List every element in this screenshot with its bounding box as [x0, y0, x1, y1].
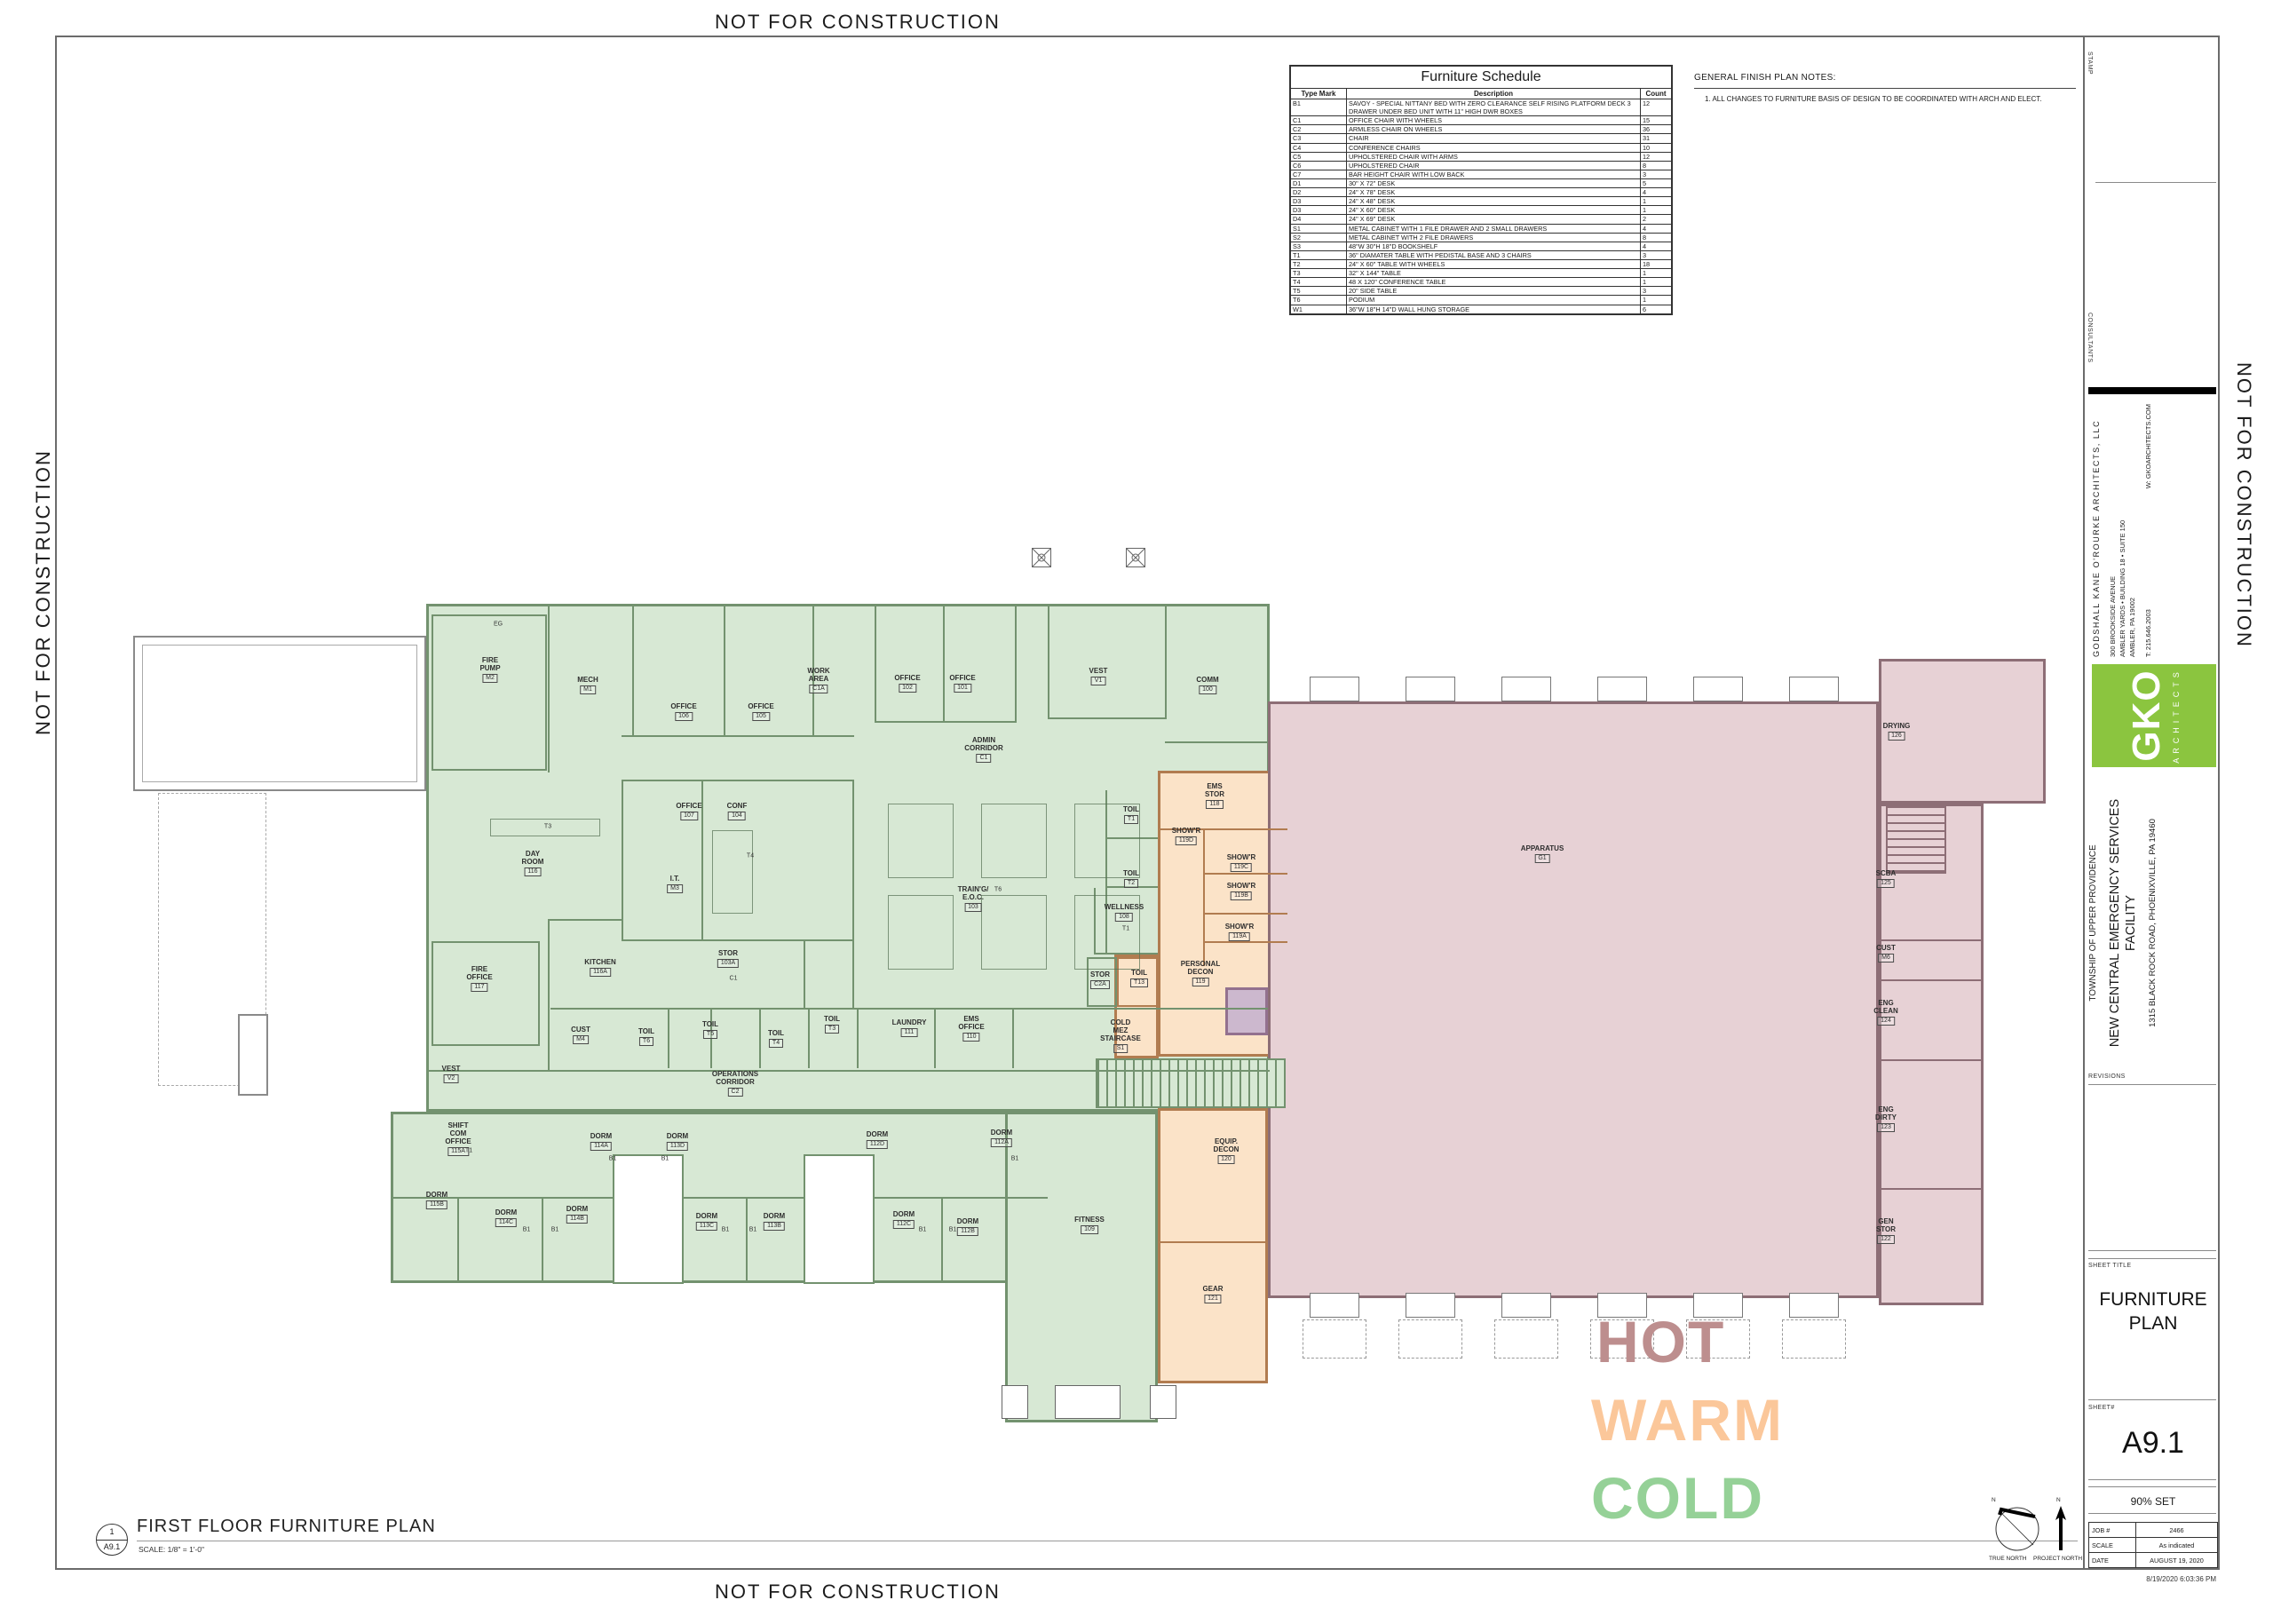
dorm-courtyard-gap — [613, 1154, 684, 1284]
room-tag: 101 — [954, 684, 971, 693]
room-tag: C2A — [1090, 980, 1110, 989]
legend-cold: COLD — [1591, 1469, 1764, 1527]
viewport-scale: SCALE: 1/8" = 1'-0" — [139, 1545, 204, 1554]
type-mark-cell: C1 — [1290, 116, 1347, 125]
room-tag: V1 — [1091, 677, 1106, 685]
watermark-bottom: NOT FOR CONSTRUCTION — [715, 1580, 1001, 1604]
room-name: TOIL — [638, 1028, 654, 1036]
room-name: I.T. — [667, 875, 683, 883]
description-cell: SAVOY - SPECIAL NITTANY BED WITH ZERO CL… — [1347, 99, 1641, 116]
wall-segment — [875, 721, 1017, 723]
wall-segment — [391, 1197, 613, 1199]
room-label: TRAIN'G/E.O.C.103 — [958, 886, 989, 912]
furniture-outline — [981, 895, 1047, 970]
job-info-value: As indicated — [2136, 1538, 2218, 1553]
room-name: STOR — [717, 950, 739, 958]
general-notes: GENERAL FINISH PLAN NOTES: 1. ALL CHANGE… — [1694, 73, 2076, 103]
revisions-label: REVISIONS — [2088, 1073, 2126, 1080]
room-label: DORM113C — [696, 1213, 717, 1231]
schedule-row: C1OFFICE CHAIR WITH WHEELS15 — [1290, 116, 1672, 125]
wall-segment — [1879, 979, 1984, 981]
set-rule-1 — [2088, 1479, 2216, 1480]
type-mark-cell: D4 — [1290, 215, 1347, 224]
description-cell: ARMLESS CHAIR ON WHEELS — [1347, 125, 1641, 134]
room-name: SCBA — [1876, 870, 1897, 878]
sheet-title-label: SHEET TITLE — [2088, 1263, 2132, 1269]
type-mark-cell: C7 — [1290, 170, 1347, 178]
note-item: 1. ALL CHANGES TO FURNITURE BASIS OF DES… — [1694, 95, 2076, 103]
room-name: OFFICE — [748, 703, 773, 711]
room-name: DORM — [696, 1213, 717, 1221]
count-cell: 15 — [1641, 116, 1673, 125]
room-tag: 102 — [899, 684, 916, 693]
wall-segment — [1165, 606, 1167, 719]
viewport-bubble: 1 A9.1 — [96, 1524, 128, 1556]
room-label: MECHM1 — [577, 677, 598, 694]
room-name: FITNESS — [1074, 1216, 1105, 1224]
room-tag: 114B — [566, 1215, 588, 1224]
description-cell: UPHOLSTERED CHAIR — [1347, 161, 1641, 170]
sheet-title-rule-1 — [2088, 1250, 2216, 1251]
count-cell: 12 — [1641, 152, 1673, 161]
project-client: TOWNSHIP OF UPPER PROVIDENCE — [2088, 774, 2098, 1072]
wall-segment — [941, 1199, 943, 1283]
wall-segment — [1203, 913, 1287, 915]
schedule-column-header: Description — [1347, 89, 1641, 99]
project-info: TOWNSHIP OF UPPER PROVIDENCE NEW CENTRAL… — [2088, 774, 2218, 1072]
type-mark-cell: T6 — [1290, 296, 1347, 305]
count-cell: 3 — [1641, 170, 1673, 178]
viewport-title: FIRST FLOOR FURNITURE PLAN — [137, 1517, 436, 1537]
description-cell: BAR HEIGHT CHAIR WITH LOW BACK — [1347, 170, 1641, 178]
type-mark-cell: S1 — [1290, 224, 1347, 233]
project-north-n: N — [2056, 1497, 2061, 1503]
entry-stoop — [1150, 1385, 1176, 1419]
room-label: GEAR121 — [1202, 1286, 1223, 1303]
room-label: EMSOFFICE110 — [958, 1016, 984, 1042]
count-cell: 1 — [1641, 278, 1673, 287]
wall-segment — [1879, 1059, 1984, 1061]
wall-segment — [622, 939, 852, 941]
description-cell: 48 X 120" CONFERENCE TABLE — [1347, 278, 1641, 287]
watermark-top: NOT FOR CONSTRUCTION — [715, 11, 1001, 34]
type-mark-cell: B1 — [1290, 99, 1347, 116]
count-cell: 1 — [1641, 197, 1673, 206]
sheet-title-rule-2 — [2088, 1258, 2216, 1259]
project-name-line1: NEW CENTRAL EMERGENCY SERVICES — [2107, 774, 2123, 1072]
room-label: ENGDIRTY123 — [1875, 1106, 1897, 1132]
furniture-mark: B1 — [919, 1227, 927, 1233]
description-cell: 24" X 48" DESK — [1347, 197, 1641, 206]
room-tag: 122 — [1877, 1235, 1895, 1244]
job-info-row: SCALEAs indicated — [2089, 1538, 2218, 1553]
wall-segment — [1879, 1188, 1984, 1190]
count-cell: 36 — [1641, 125, 1673, 134]
furniture-outline — [981, 804, 1047, 878]
furniture-mark: B1 — [1011, 1156, 1019, 1162]
bay-door — [1310, 677, 1359, 701]
room-name: TOIL — [1123, 870, 1139, 878]
room-label: CUSTM6 — [1876, 945, 1896, 963]
room-label: LAUNDRY111 — [892, 1019, 927, 1037]
schedule-row: C5UPHOLSTERED CHAIR WITH ARMS12 — [1290, 152, 1672, 161]
count-cell: 6 — [1641, 305, 1673, 314]
firm-website: W: GKOARCHITECTS.COM — [2144, 404, 2152, 488]
room-label: WELLNESS108 — [1105, 904, 1144, 922]
set-rule-2 — [2088, 1486, 2216, 1487]
firm-phone: T: 215.646.2003 — [2144, 609, 2152, 657]
description-cell: CONFERENCE CHAIRS — [1347, 143, 1641, 152]
sheet-number-rule — [2088, 1399, 2216, 1400]
room-name: DECON — [1181, 969, 1220, 977]
room-label: GENSTOR122 — [1876, 1218, 1896, 1244]
type-mark-cell: W1 — [1290, 305, 1347, 314]
room-tag: 113D — [667, 1142, 688, 1151]
firm-address-3: AMBLER, PA 19002 — [2128, 404, 2138, 657]
wall-segment — [548, 919, 623, 921]
room-name: DIRTY — [1875, 1114, 1897, 1122]
room-name: TOIL — [702, 1021, 718, 1029]
furniture-mark: EG — [494, 622, 503, 628]
sheet-number: A9.1 — [2088, 1426, 2218, 1461]
schedule-column-header: Type Mark — [1290, 89, 1347, 99]
room-label: DORM113B — [764, 1213, 785, 1231]
furniture-mark: B1 — [722, 1227, 730, 1233]
bay-door — [1406, 1293, 1455, 1318]
room-name: CORRIDOR — [964, 745, 1003, 753]
room-label: COMM100 — [1196, 677, 1218, 694]
room-name: STAIRCASE — [1100, 1035, 1141, 1043]
wall-segment — [852, 1008, 1268, 1010]
viewport-title-rule — [137, 1541, 2078, 1541]
room-name: DRYING — [1883, 723, 1911, 731]
wall-segment — [426, 1070, 1270, 1072]
gko-logo: GKO ARCHITECTS — [2092, 664, 2216, 767]
room-label: SHOW'R119B — [1227, 883, 1256, 900]
bay-door-apron — [1303, 1319, 1366, 1359]
schedule-row: C3CHAIR31 — [1290, 134, 1672, 143]
gko-logo-subtext: ARCHITECTS — [2172, 668, 2181, 764]
notes-title: GENERAL FINISH PLAN NOTES: — [1694, 73, 2076, 83]
type-mark-cell: T2 — [1290, 259, 1347, 268]
true-north-icon — [1989, 1502, 2044, 1558]
schedule-row: T224" X 60" TABLE WITH WHEELS18 — [1290, 259, 1672, 268]
room-name: OFFICE — [949, 675, 975, 683]
furniture-mark: T1 — [465, 1148, 472, 1154]
room-label: VESTV1 — [1089, 668, 1108, 685]
schedule-row: D424" X 69" DESK2 — [1290, 215, 1672, 224]
room-label: SHOW'R119C — [1227, 854, 1256, 872]
room-name: STOR — [1090, 971, 1110, 979]
room-label: EQUIP.DECON120 — [1214, 1138, 1239, 1164]
room-tag: 100 — [1199, 685, 1216, 694]
room-name: DORM — [590, 1133, 612, 1141]
type-mark-cell: D1 — [1290, 178, 1347, 187]
room-name: SHOW'R — [1172, 828, 1201, 836]
room-tag: C1 — [977, 754, 992, 763]
room-tag: C1A — [809, 685, 828, 693]
room-label: CUSTM4 — [571, 1026, 590, 1044]
cold-mez-stair — [1096, 1058, 1286, 1108]
room-tag: 119B — [1231, 891, 1252, 900]
room-name: OFFICE — [676, 803, 701, 811]
bay-door — [1597, 677, 1647, 701]
bay-door — [1693, 677, 1743, 701]
stamp-underline — [2095, 182, 2216, 183]
revisions-underline — [2088, 1084, 2216, 1085]
canopy-inner-line — [142, 645, 417, 782]
wall-segment — [746, 1199, 748, 1283]
room-name: CUST — [571, 1026, 590, 1034]
room-label: APPARATUSG1 — [1521, 845, 1564, 863]
viewport-sheet-ref: A9.1 — [97, 1541, 127, 1553]
room-tag: 119 — [1192, 978, 1208, 986]
column-symbol — [1126, 548, 1145, 567]
room-label: SHOW'R119D — [1172, 828, 1201, 845]
wall-segment — [684, 1197, 804, 1199]
room-label: OFFICE102 — [894, 675, 920, 693]
set-rule-3 — [2088, 1513, 2216, 1514]
room-tag: 112C — [893, 1220, 915, 1229]
room-label: DAYROOM116 — [522, 851, 544, 876]
room-label: SCBA125 — [1876, 870, 1897, 888]
count-cell: 1 — [1641, 206, 1673, 215]
furniture-outline — [888, 895, 954, 970]
count-cell: 1 — [1641, 269, 1673, 278]
room-tag: 103A — [717, 959, 739, 968]
count-cell: 10 — [1641, 143, 1673, 152]
sheet-title: FURNITURE PLAN — [2088, 1287, 2218, 1336]
room-tag: 103 — [964, 903, 982, 912]
wall-segment — [1203, 873, 1287, 875]
room-tag: 116A — [590, 968, 611, 977]
bay-door — [1406, 677, 1455, 701]
wall-segment — [808, 1010, 810, 1068]
wall-segment — [1048, 717, 1167, 719]
room-tag: 105 — [752, 712, 770, 721]
room-tag: T4 — [769, 1039, 783, 1048]
job-info-row: JOB #2466 — [2089, 1523, 2218, 1538]
room-tag: T13 — [1130, 978, 1148, 987]
furniture-mark: T1 — [1122, 926, 1129, 932]
room-tag: 123 — [1877, 1123, 1895, 1132]
entry-stoop — [1002, 1385, 1028, 1419]
room-tag: 126 — [1888, 732, 1905, 741]
furniture-mark: T3 — [544, 824, 551, 830]
room-tag: 119C — [1231, 863, 1252, 872]
room-label: DORM112C — [893, 1211, 915, 1229]
description-cell: METAL CABINET WITH 2 FILE DRAWERS — [1347, 233, 1641, 242]
room-tag: M6 — [1878, 954, 1894, 963]
room-label: ADMINCORRIDORC1 — [964, 737, 1003, 763]
wall-segment — [632, 606, 634, 735]
count-cell: 18 — [1641, 259, 1673, 268]
project-north-label: PROJECT NORTH — [2033, 1556, 2082, 1562]
room-name: AREA — [807, 676, 829, 684]
description-cell: 32" X 144" TABLE — [1347, 269, 1641, 278]
room-name: OFFICE — [670, 703, 696, 711]
room-tag: C2 — [728, 1088, 743, 1097]
zone-decon-toilet — [1225, 987, 1268, 1035]
project-address: 1315 BLACK ROCK ROAD, PHOENIXVILLE, PA 1… — [2148, 774, 2158, 1072]
room-tag: 111 — [901, 1028, 918, 1037]
room-name: PUMP — [479, 665, 500, 673]
room-tag: G1 — [1534, 854, 1549, 863]
description-cell: 36" DIAMATER TABLE WITH PEDISTAL BASE AN… — [1347, 250, 1641, 259]
column-x-icon — [1033, 549, 1050, 566]
legend-hot: HOT — [1596, 1312, 1725, 1371]
room-tag: 107 — [680, 812, 698, 820]
wall-segment — [457, 1199, 459, 1283]
job-info-value: 2466 — [2136, 1523, 2218, 1538]
room-name: DORM — [667, 1133, 688, 1141]
wall-segment — [1203, 830, 1205, 966]
room-name: TOIL — [1123, 806, 1139, 814]
room-label: DORM114C — [495, 1209, 517, 1227]
room-name: ROOM — [522, 859, 544, 867]
room-label: OFFICE105 — [748, 703, 773, 721]
count-cell: 1 — [1641, 296, 1673, 305]
schedule-row: T6PODIUM1 — [1290, 296, 1672, 305]
bay-door — [1501, 677, 1551, 701]
schedule-row: D130" X 72" DESK5 — [1290, 178, 1672, 187]
room-label: KITCHEN116A — [584, 959, 616, 977]
room-name: CONF — [727, 803, 748, 811]
schedule-row: C7BAR HEIGHT CHAIR WITH LOW BACK3 — [1290, 170, 1672, 178]
schedule-row: D324" X 60" DESK1 — [1290, 206, 1672, 215]
room-label: SHOW'R119A — [1225, 923, 1255, 941]
room-name: SHOW'R — [1225, 923, 1255, 931]
furniture-mark: B1 — [551, 1227, 559, 1233]
consultants-label: CONSULTANTS — [2087, 313, 2093, 363]
firm-name: GODSHALL KANE O'ROURKE ARCHITECTS, LLC — [2092, 404, 2101, 657]
room-label: TOILT6 — [638, 1028, 654, 1046]
room-tag: 120 — [1217, 1155, 1235, 1164]
sheet-number-label: SHEET# — [2088, 1405, 2115, 1411]
project-name-line2: FACILITY — [2123, 774, 2139, 1072]
wall-segment — [724, 606, 725, 735]
room-tag: 112B — [957, 1227, 978, 1236]
room-name: WELLNESS — [1105, 904, 1144, 912]
furniture-mark: C1 — [730, 976, 738, 982]
wall-segment — [548, 919, 550, 1070]
wall-segment — [1158, 1241, 1268, 1243]
description-cell: METAL CABINET WITH 1 FILE DRAWER AND 2 S… — [1347, 224, 1641, 233]
room-name: OFFICE — [894, 675, 920, 683]
room-name: CUST — [1876, 945, 1896, 953]
room-label: TOILT3 — [824, 1016, 840, 1034]
type-mark-cell: S2 — [1290, 233, 1347, 242]
wall-segment — [1048, 606, 1049, 719]
job-info-table: JOB #2466SCALEAs indicatedDATEAUGUST 19,… — [2088, 1522, 2218, 1568]
wall-segment — [804, 939, 805, 1010]
description-cell: OFFICE CHAIR WITH WHEELS — [1347, 116, 1641, 125]
room-name: VEST — [1089, 668, 1108, 676]
wall-segment — [710, 1010, 712, 1068]
firm-address-2: AMBLER YARDS • BUILDING 18 • SUITE 150 — [2119, 404, 2128, 657]
legend-warm: WARM — [1591, 1390, 1784, 1449]
wall-segment — [1015, 606, 1017, 721]
schedule-row: C4CONFERENCE CHAIRS10 — [1290, 143, 1672, 152]
count-cell: 4 — [1641, 242, 1673, 250]
bay-door-apron — [1398, 1319, 1462, 1359]
wall-segment — [875, 606, 876, 721]
schedule-column-header: Count — [1641, 89, 1673, 99]
type-mark-cell: S3 — [1290, 242, 1347, 250]
schedule-row: D324" X 48" DESK1 — [1290, 197, 1672, 206]
job-info-label: JOB # — [2089, 1523, 2136, 1538]
furniture-mark: T6 — [994, 887, 1002, 893]
room-name: CLEAN — [1873, 1008, 1898, 1016]
wall-segment — [1165, 741, 1268, 743]
room-name: DORM — [426, 1192, 447, 1200]
job-info-row: DATEAUGUST 19, 2020 — [2089, 1553, 2218, 1568]
dorm-courtyard-gap — [804, 1154, 875, 1284]
bay-door-apron — [1494, 1319, 1558, 1359]
wall-segment — [1879, 939, 1984, 941]
room-label: TOILT1 — [1123, 806, 1139, 824]
zone-cold-fitness — [1005, 1112, 1158, 1422]
wall-segment — [668, 1010, 669, 1068]
room-name: APPARATUS — [1521, 845, 1564, 853]
room-label: OFFICE101 — [949, 675, 975, 693]
room-label: COLDMEZSTAIRCASES1 — [1100, 1019, 1141, 1053]
stamp-label: STAMP — [2087, 51, 2093, 75]
furniture-mark: B1 — [523, 1227, 531, 1233]
room-name: VEST — [442, 1066, 461, 1073]
wall-segment — [875, 1197, 1048, 1199]
room-tag: 110 — [962, 1033, 979, 1042]
room-label: TOILT4 — [768, 1030, 784, 1048]
furniture-outline — [712, 830, 753, 914]
count-cell: 3 — [1641, 250, 1673, 259]
schedule-row: B1SAVOY - SPECIAL NITTANY BED WITH ZERO … — [1290, 99, 1672, 116]
room-tag: 112D — [867, 1140, 888, 1149]
room-name: LAUNDRY — [892, 1019, 927, 1027]
type-mark-cell: C4 — [1290, 143, 1347, 152]
wall-segment — [548, 606, 550, 772]
room-tag: 121 — [1204, 1295, 1222, 1303]
type-mark-cell: D3 — [1290, 206, 1347, 215]
count-cell: 4 — [1641, 188, 1673, 197]
description-cell: 24" X 60" DESK — [1347, 206, 1641, 215]
room-name: DORM — [991, 1129, 1012, 1137]
type-mark-cell: T5 — [1290, 287, 1347, 296]
furniture-mark: B1 — [609, 1156, 617, 1162]
room-label: FITNESS109 — [1074, 1216, 1105, 1234]
room-tag: V2 — [444, 1074, 459, 1083]
room-label: STORC2A — [1090, 971, 1110, 989]
type-mark-cell: T1 — [1290, 250, 1347, 259]
schedule-row: T520" SIDE TABLE3 — [1290, 287, 1672, 296]
room-tag: 124 — [1877, 1017, 1895, 1026]
side-stoop — [238, 1014, 268, 1096]
room-label: I.T.M3 — [667, 875, 683, 893]
furniture-mark: B1 — [749, 1227, 757, 1233]
furniture-outline — [888, 804, 954, 878]
schedule-row: S1METAL CABINET WITH 1 FILE DRAWER AND 2… — [1290, 224, 1672, 233]
set-label: 90% SET — [2088, 1495, 2218, 1508]
room-tag: 119D — [1176, 836, 1197, 845]
column-x-icon — [1127, 549, 1144, 566]
count-cell: 12 — [1641, 99, 1673, 116]
room-label: EMSSTOR118 — [1205, 783, 1224, 809]
schedule-row: T332" X 144" TABLE1 — [1290, 269, 1672, 278]
room-tag: 118 — [1206, 800, 1223, 809]
description-cell: PODIUM — [1347, 296, 1641, 305]
project-north-icon — [2047, 1504, 2074, 1557]
project-name: NEW CENTRAL EMERGENCY SERVICES FACILITY — [2107, 774, 2139, 1072]
